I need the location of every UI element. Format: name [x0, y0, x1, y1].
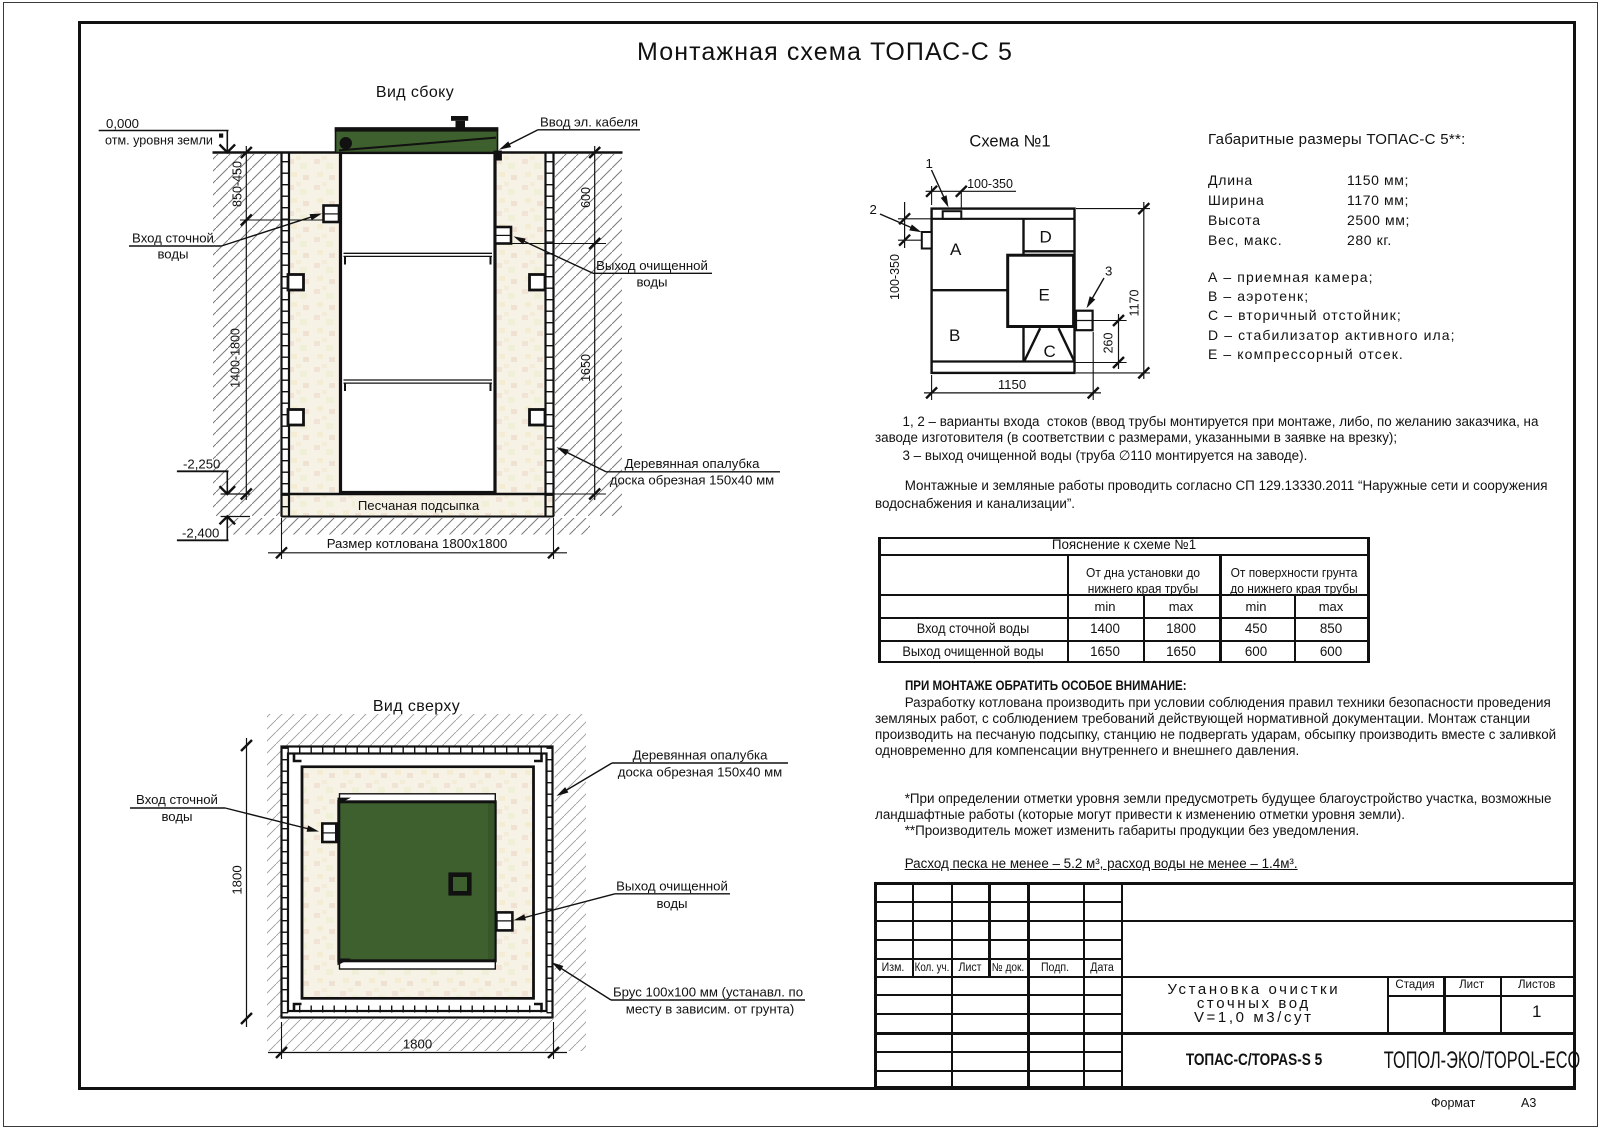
svg-text:Размер котлована 1800х1800: Размер котлована 1800х1800 — [327, 536, 508, 551]
svg-text:100-350: 100-350 — [967, 177, 1013, 191]
svg-text:воды: воды — [161, 809, 192, 824]
svg-text:100-350: 100-350 — [888, 254, 902, 300]
svg-text:1400-1800: 1400-1800 — [229, 328, 243, 388]
svg-text:B: B — [949, 326, 960, 345]
svg-text:1150: 1150 — [998, 377, 1026, 392]
svg-text:месту в зависим. от грунта): месту в зависим. от грунта) — [626, 1002, 794, 1017]
svg-text:Схема №1: Схема №1 — [969, 133, 1050, 151]
svg-text:Выход очищенной: Выход очищенной — [596, 258, 708, 273]
svg-text:1: 1 — [926, 156, 933, 171]
svg-text:3: 3 — [1105, 264, 1112, 279]
svg-text:-2,250: -2,250 — [183, 457, 220, 472]
svg-text:A: A — [950, 240, 962, 259]
svg-text:доска обрезная 150х40 мм: доска обрезная 150х40 мм — [618, 765, 782, 780]
svg-text:Песчаная подсыпка: Песчаная подсыпка — [358, 498, 480, 513]
svg-text:D: D — [1040, 228, 1052, 247]
svg-text:1800: 1800 — [230, 865, 245, 894]
svg-text:0,000: 0,000 — [106, 116, 139, 131]
svg-text:отм. уровня земли: отм. уровня земли — [105, 134, 213, 148]
svg-text:Выход очищенной: Выход очищенной — [616, 879, 728, 894]
svg-text:-2,400: -2,400 — [182, 526, 219, 541]
svg-text:Вид сбоку: Вид сбоку — [376, 84, 454, 101]
svg-text:Вид сверху: Вид сверху — [373, 698, 460, 715]
svg-text:1170: 1170 — [1128, 290, 1142, 317]
svg-text:воды: воды — [656, 896, 687, 911]
svg-text:E: E — [1039, 286, 1050, 305]
svg-text:Брус 100х100 мм (устанавл. по: Брус 100х100 мм (устанавл. по — [613, 985, 803, 1000]
svg-text:Ввод эл. кабеля: Ввод эл. кабеля — [540, 115, 638, 130]
svg-text:доска обрезная 150х40 мм: доска обрезная 150х40 мм — [610, 473, 774, 488]
svg-text:Деревянная опалубка: Деревянная опалубка — [633, 748, 768, 763]
svg-text:1800: 1800 — [403, 1037, 432, 1052]
svg-text:Деревянная опалубка: Деревянная опалубка — [625, 456, 760, 471]
svg-text:600: 600 — [579, 187, 593, 208]
svg-text:850-450: 850-450 — [231, 161, 245, 207]
svg-text:C: C — [1044, 342, 1056, 361]
svg-text:260: 260 — [1102, 333, 1116, 354]
svg-text:2: 2 — [870, 202, 877, 217]
svg-text:воды: воды — [157, 247, 188, 262]
svg-text:воды: воды — [636, 275, 667, 290]
svg-text:Вход сточной: Вход сточной — [136, 792, 218, 807]
svg-text:Вход сточной: Вход сточной — [132, 231, 214, 246]
svg-text:1650: 1650 — [579, 354, 593, 382]
